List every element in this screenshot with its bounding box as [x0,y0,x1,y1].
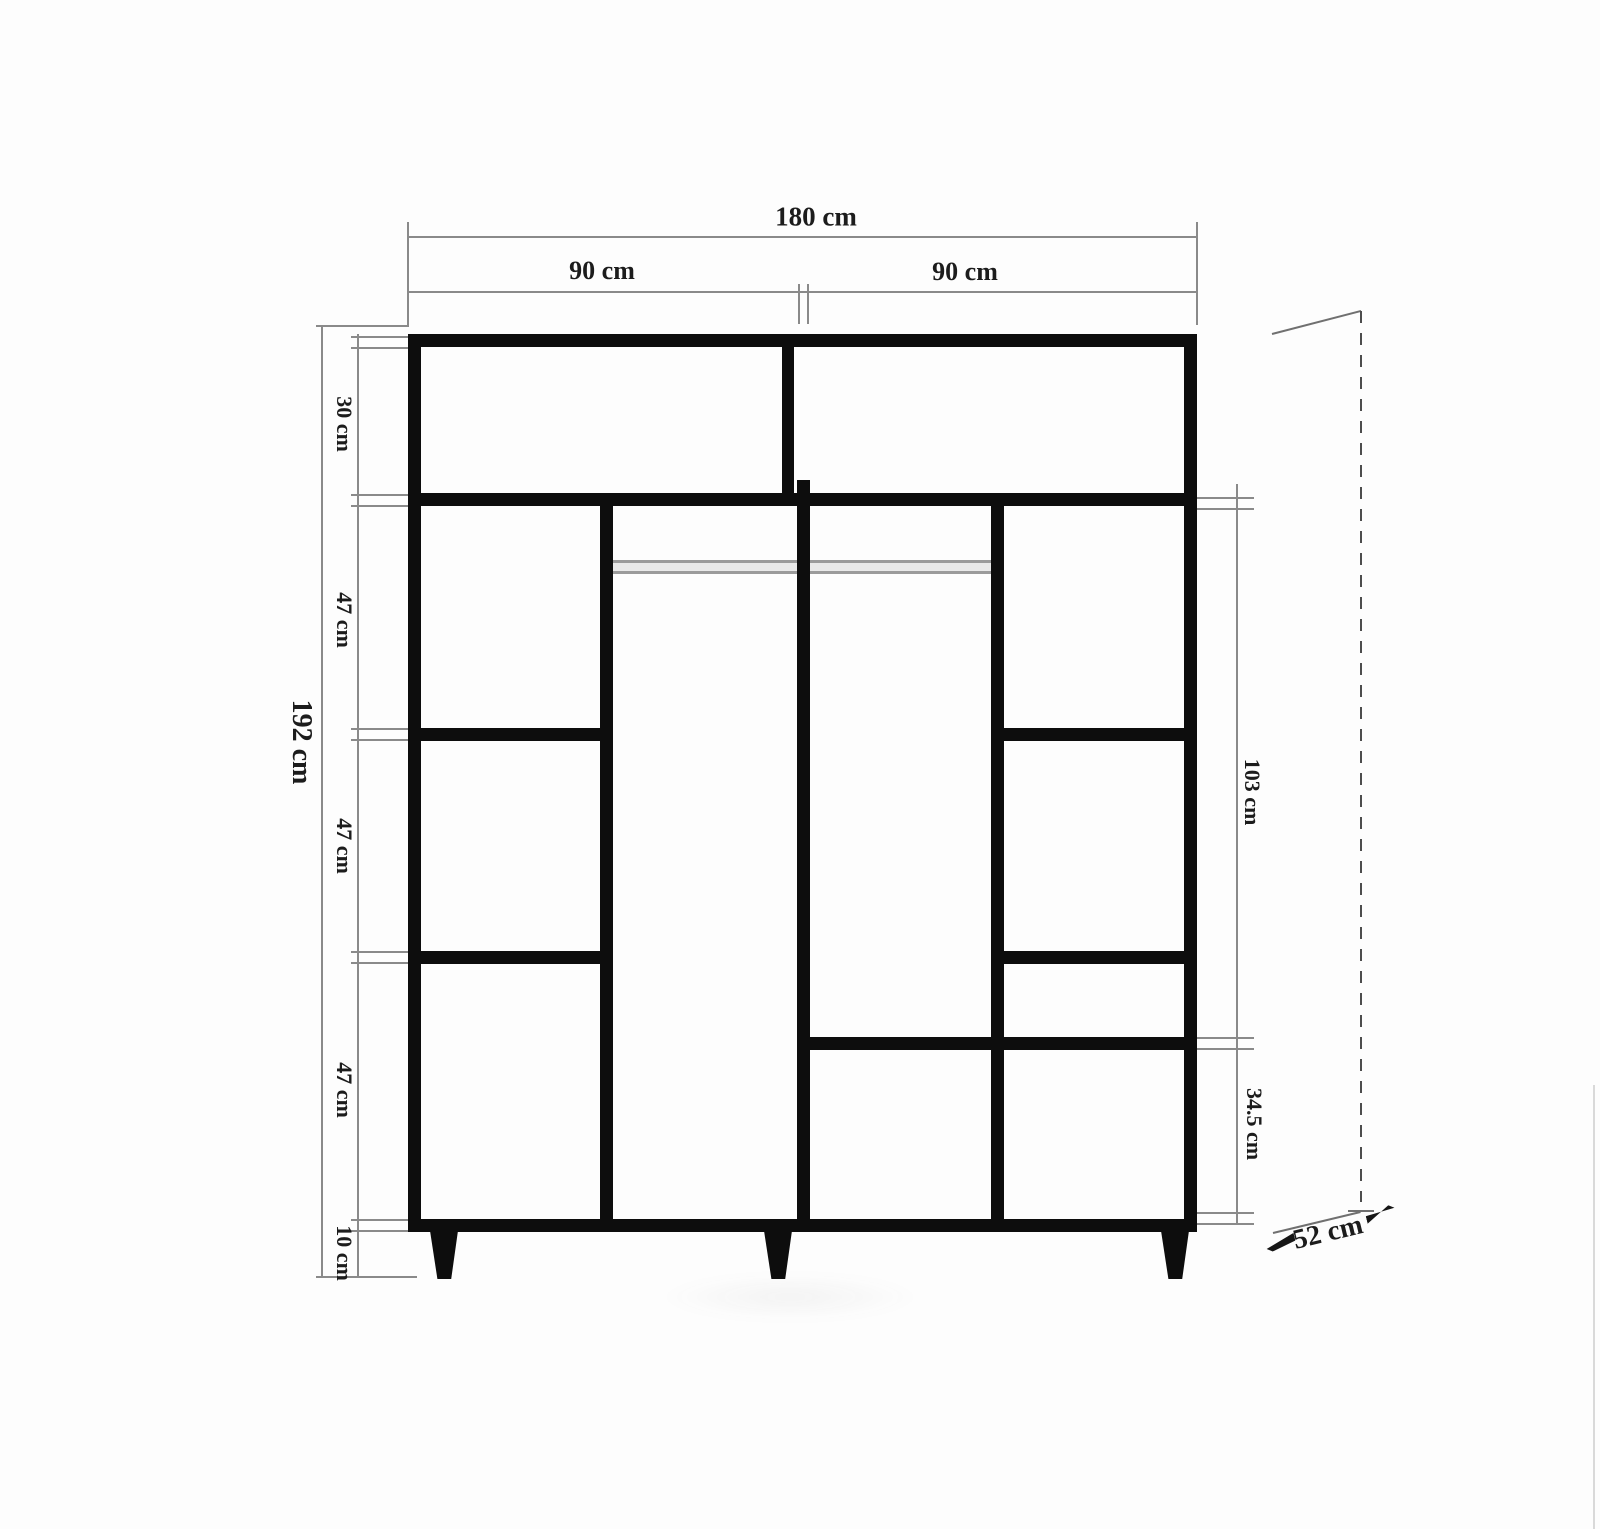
door-width-left-label: 90 cm [569,258,635,284]
scan-edge-artifact [1593,1085,1595,1529]
dimension-tick [798,284,800,324]
left-column-shelf-upper [421,728,600,741]
cabinet-frame-bottom [408,1219,1197,1232]
height-total-dimension-line [321,326,323,1277]
depth-projection-dashed-line [1360,311,1362,1202]
hanging-rail-right [810,560,991,574]
wardrobe-technical-drawing: 180 cm 90 cm 90 cm 192 cm 30 cm 47 cm 47… [0,0,1600,1529]
left-column-shelf-lower [421,951,600,964]
dimension-tick [407,222,409,325]
height-total-label: 192 cm [287,700,315,785]
dimension-tick [1197,497,1254,499]
dimension-tick [1197,1212,1254,1214]
dimension-tick [1197,1037,1254,1039]
right-column-divider [991,506,1004,1219]
dimension-tick [351,494,409,496]
cabinet-leg-left [429,1232,459,1279]
dimension-tick [351,1219,409,1221]
depth-projection-top-edge [1272,310,1362,335]
dimension-tick [351,336,409,338]
dimension-extension-line [316,325,409,327]
dimension-tick [1197,1048,1254,1050]
right-segment-label-34-5: 34.5 cm [1243,1088,1265,1160]
width-total-dimension-line [408,236,1197,238]
top-row-center-divider [782,347,794,502]
cabinet-frame-left [408,334,421,1232]
cabinet-leg-right [1160,1232,1190,1279]
depth-arrow-right [1364,1204,1396,1224]
dimension-tick [807,284,809,324]
width-total-label: 180 cm [775,204,857,231]
right-column-shelf-lower [1004,951,1184,964]
left-column-divider [600,506,613,1219]
cabinet-frame-top [408,334,1197,347]
dimension-tick [351,962,409,964]
scan-smudge [660,1272,920,1322]
height-segment-label-30: 30 cm [333,396,355,452]
height-segment-label-47b: 47 cm [333,818,355,874]
dimension-tick [351,739,409,741]
dimension-tick [351,347,409,349]
right-column-shelf-upper [1004,728,1184,741]
dimension-tick [351,1230,409,1232]
center-divider [797,480,810,1219]
dimension-tick [1197,1223,1254,1225]
right-segments-dimension-line [1236,484,1238,1223]
right-half-bottom-shelf [810,1037,1184,1050]
dimension-tick [1197,508,1254,510]
door-width-dimension-line [408,291,1197,293]
height-segment-label-10: 10 cm [333,1225,355,1281]
depth-label: 52 cm [1290,1211,1365,1255]
dimension-tick [351,505,409,507]
right-segment-label-103: 103 cm [1241,759,1263,826]
door-width-right-label: 90 cm [932,259,998,285]
dimension-tick [351,951,409,953]
cabinet-frame-right [1184,334,1197,1232]
dimension-tick [1196,222,1198,325]
hanging-rail-left [613,560,797,574]
height-segments-dimension-line [357,334,359,1277]
height-segment-label-47a: 47 cm [333,592,355,648]
dimension-tick [351,728,409,730]
height-segment-label-47c: 47 cm [333,1062,355,1118]
